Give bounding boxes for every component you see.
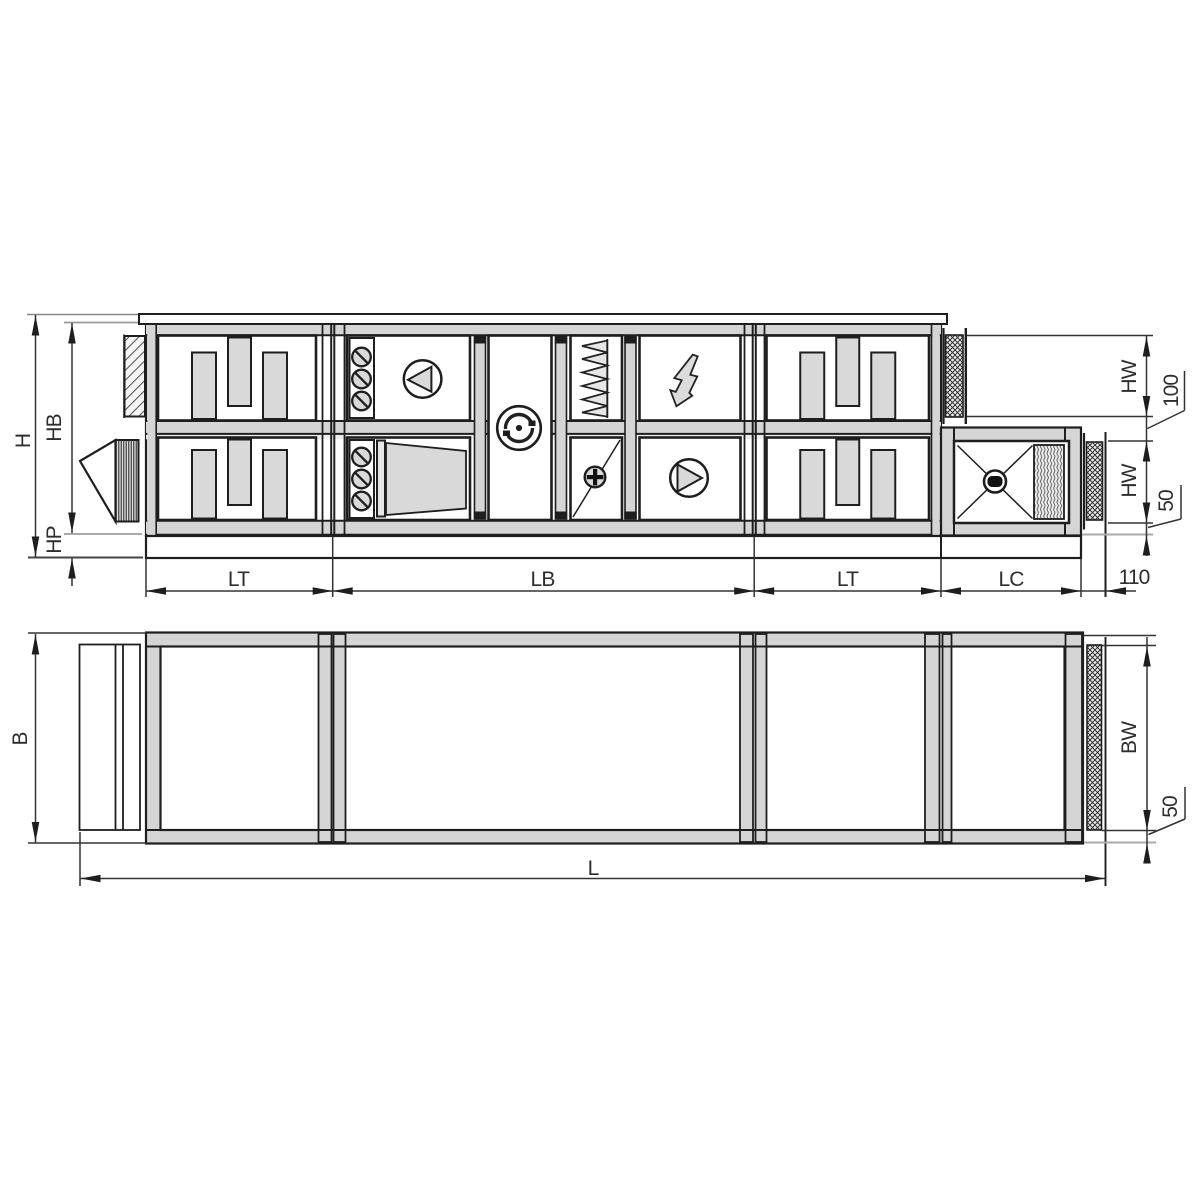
svg-text:LB: LB	[531, 568, 555, 591]
svg-text:HW: HW	[1118, 359, 1141, 393]
svg-text:HW: HW	[1118, 463, 1141, 497]
svg-text:HB: HB	[43, 414, 66, 441]
svg-text:50: 50	[1155, 490, 1178, 512]
svg-text:LT: LT	[228, 568, 250, 591]
svg-text:B: B	[9, 732, 32, 745]
svg-text:BW: BW	[1118, 721, 1141, 754]
svg-text:H: H	[12, 434, 35, 448]
svg-text:100: 100	[1160, 375, 1183, 408]
svg-text:50: 50	[1159, 796, 1182, 818]
svg-text:110: 110	[1119, 566, 1150, 589]
svg-text:LC: LC	[998, 568, 1024, 591]
svg-text:L: L	[588, 857, 599, 880]
svg-text:HP: HP	[43, 526, 66, 553]
svg-text:LT: LT	[837, 568, 859, 591]
